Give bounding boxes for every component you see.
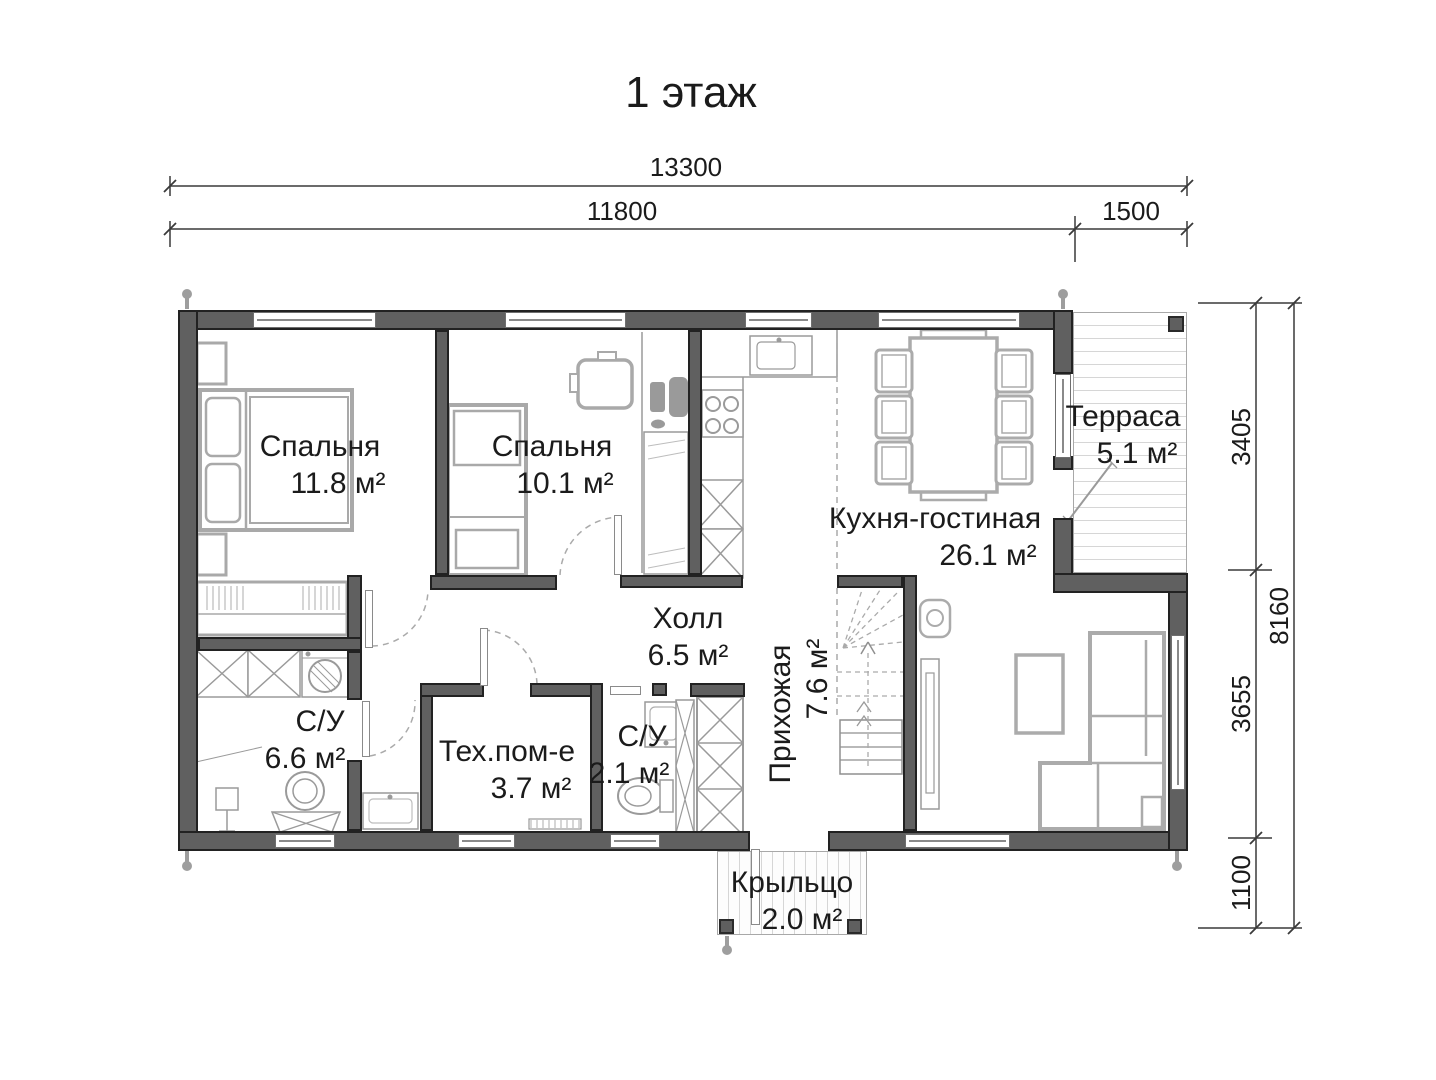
wall-hall-segment1: [430, 575, 557, 590]
dim-side-upper: 3405: [1226, 382, 1254, 492]
dim-top-right: 1500: [1071, 196, 1191, 227]
room-label-entry: Прихожая 7.6 м²: [737, 624, 861, 804]
wall-tech-top-a: [420, 683, 484, 697]
window: [610, 834, 660, 848]
room-label-bathroom-main: С/У 6.6 м²: [245, 703, 395, 777]
door-leaf-bedroom1: [365, 590, 373, 648]
page-title: 1 этаж: [541, 68, 841, 118]
dim-side-lower: 1100: [1226, 828, 1254, 938]
window: [253, 312, 376, 328]
window: [458, 834, 515, 848]
terrace-corner-post: [1168, 316, 1184, 332]
dim-top-total: 13300: [626, 152, 746, 183]
room-label-porch: Крыльцо 2.0 м²: [717, 864, 867, 938]
window: [745, 312, 812, 328]
wall-bathroom-right-upper: [347, 651, 362, 700]
door-leaf-tech: [480, 628, 488, 686]
dim-side-middle: 3655: [1226, 649, 1254, 759]
wall-bathroom-top: [198, 637, 362, 651]
floor-plan: 1 этаж: [0, 0, 1436, 1080]
dim-side-total: 8160: [1264, 561, 1292, 671]
room-label-terrace: Терраса 5.1 м²: [1053, 398, 1193, 472]
tech-room-fixtures: [529, 819, 581, 829]
room-label-bedroom2: Спальня 10.1 м²: [457, 428, 647, 502]
living-furniture: [920, 600, 1164, 829]
wall-bedroom1-bedroom2: [435, 330, 449, 575]
wall-alcove-right: [347, 575, 362, 639]
room-label-kitchen-living: Кухня-гостиная 26.1 м²: [810, 500, 1060, 574]
wall-kitchen-terrace-upper: [1053, 310, 1073, 374]
window: [878, 312, 1020, 328]
wall-entry-right: [903, 575, 917, 831]
window: [275, 834, 335, 848]
door-leaf-bedroom2: [614, 515, 622, 575]
wall-bedroom2-kitchen: [688, 330, 702, 575]
door-leaf-bathroom-small: [610, 686, 641, 695]
wall-exterior-left: [178, 310, 198, 851]
wall-stair-top: [837, 575, 903, 588]
wall-terrace-step: [1053, 573, 1188, 593]
window: [1171, 635, 1185, 790]
window: [905, 834, 1010, 848]
window: [505, 312, 626, 328]
dim-top-left: 11800: [562, 196, 682, 227]
room-label-bedroom1: Спальня 11.8 м²: [225, 428, 415, 502]
room-label-bathroom-small: С/У 2.1 м²: [572, 718, 712, 792]
dining-set: [876, 330, 1032, 500]
wall-hall-segment2: [620, 575, 743, 588]
wall-su2-top-right: [652, 683, 667, 696]
